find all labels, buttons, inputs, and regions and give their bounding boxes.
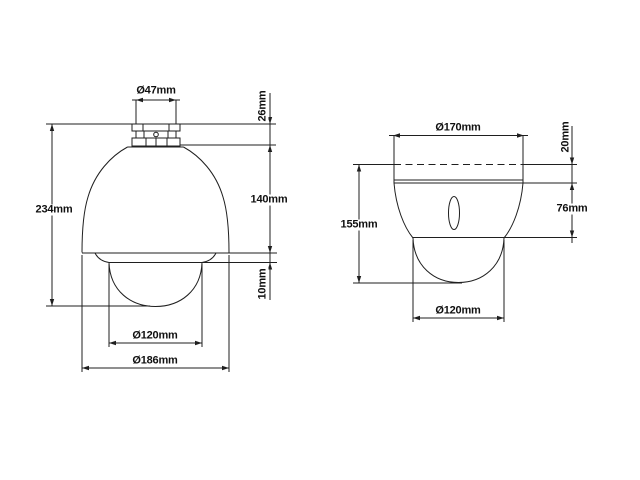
- arrowhead: [570, 183, 574, 190]
- side-latch-oval: [449, 197, 460, 230]
- arrowhead: [222, 366, 229, 370]
- dim-label-front-rim-height: 10mm: [258, 268, 269, 301]
- front-rim-lip-right: [202, 253, 216, 263]
- front-rim-lip-left: [95, 253, 109, 263]
- side-body-left-side: [394, 183, 413, 238]
- arrowhead: [570, 158, 574, 165]
- front-flange-row3: [132, 138, 180, 146]
- front-body-right-side: [184, 147, 230, 253]
- front-flange-row1: [132, 124, 180, 131]
- front-flange-screw: [154, 132, 159, 137]
- arrowhead: [413, 316, 420, 320]
- technical-drawing-svg: [0, 0, 640, 480]
- arrowhead: [570, 231, 574, 238]
- arrowhead: [268, 246, 272, 253]
- side-dome: [413, 238, 504, 283]
- dim-label-side-cap-height: 20mm: [561, 121, 572, 154]
- arrowhead: [357, 165, 361, 172]
- arrowhead: [50, 124, 54, 131]
- dim-label-front-top-diameter: Ø47mm: [135, 86, 176, 97]
- dim-label-front-dome-diameter: Ø120mm: [131, 331, 178, 342]
- arrowhead: [136, 98, 143, 102]
- side-body-right-side: [504, 183, 523, 238]
- front-dome: [109, 263, 202, 307]
- side-body-verticals: [394, 136, 523, 184]
- arrowhead: [195, 341, 202, 345]
- side-cap-band: [394, 180, 523, 183]
- dim-label-front-body-height: 140mm: [250, 195, 289, 206]
- dim-label-side-dome-diameter: Ø120mm: [434, 306, 481, 317]
- arrowhead: [497, 316, 504, 320]
- dim-label-front-mount-height: 26mm: [258, 90, 269, 123]
- dim-label-side-top-diameter: Ø170mm: [434, 123, 481, 134]
- camera-side-view: [353, 126, 577, 322]
- front-body-left-side: [82, 147, 128, 253]
- arrowhead: [109, 341, 116, 345]
- dim-label-front-base-diameter: Ø186mm: [131, 356, 178, 367]
- arrowhead: [357, 276, 361, 283]
- front-neck: [136, 100, 176, 124]
- dim-label-front-total-height: 234mm: [35, 205, 74, 216]
- dim-label-side-body-height: 76mm: [556, 204, 589, 215]
- arrowhead: [82, 366, 89, 370]
- arrowhead: [50, 299, 54, 306]
- dim-label-side-total-height: 155mm: [340, 220, 379, 231]
- camera-dimension-drawing: Ø47mm 26mm 234mm 140mm 10mm Ø120mm Ø186m…: [0, 0, 640, 480]
- arrowhead: [169, 98, 176, 102]
- arrowhead: [268, 145, 272, 152]
